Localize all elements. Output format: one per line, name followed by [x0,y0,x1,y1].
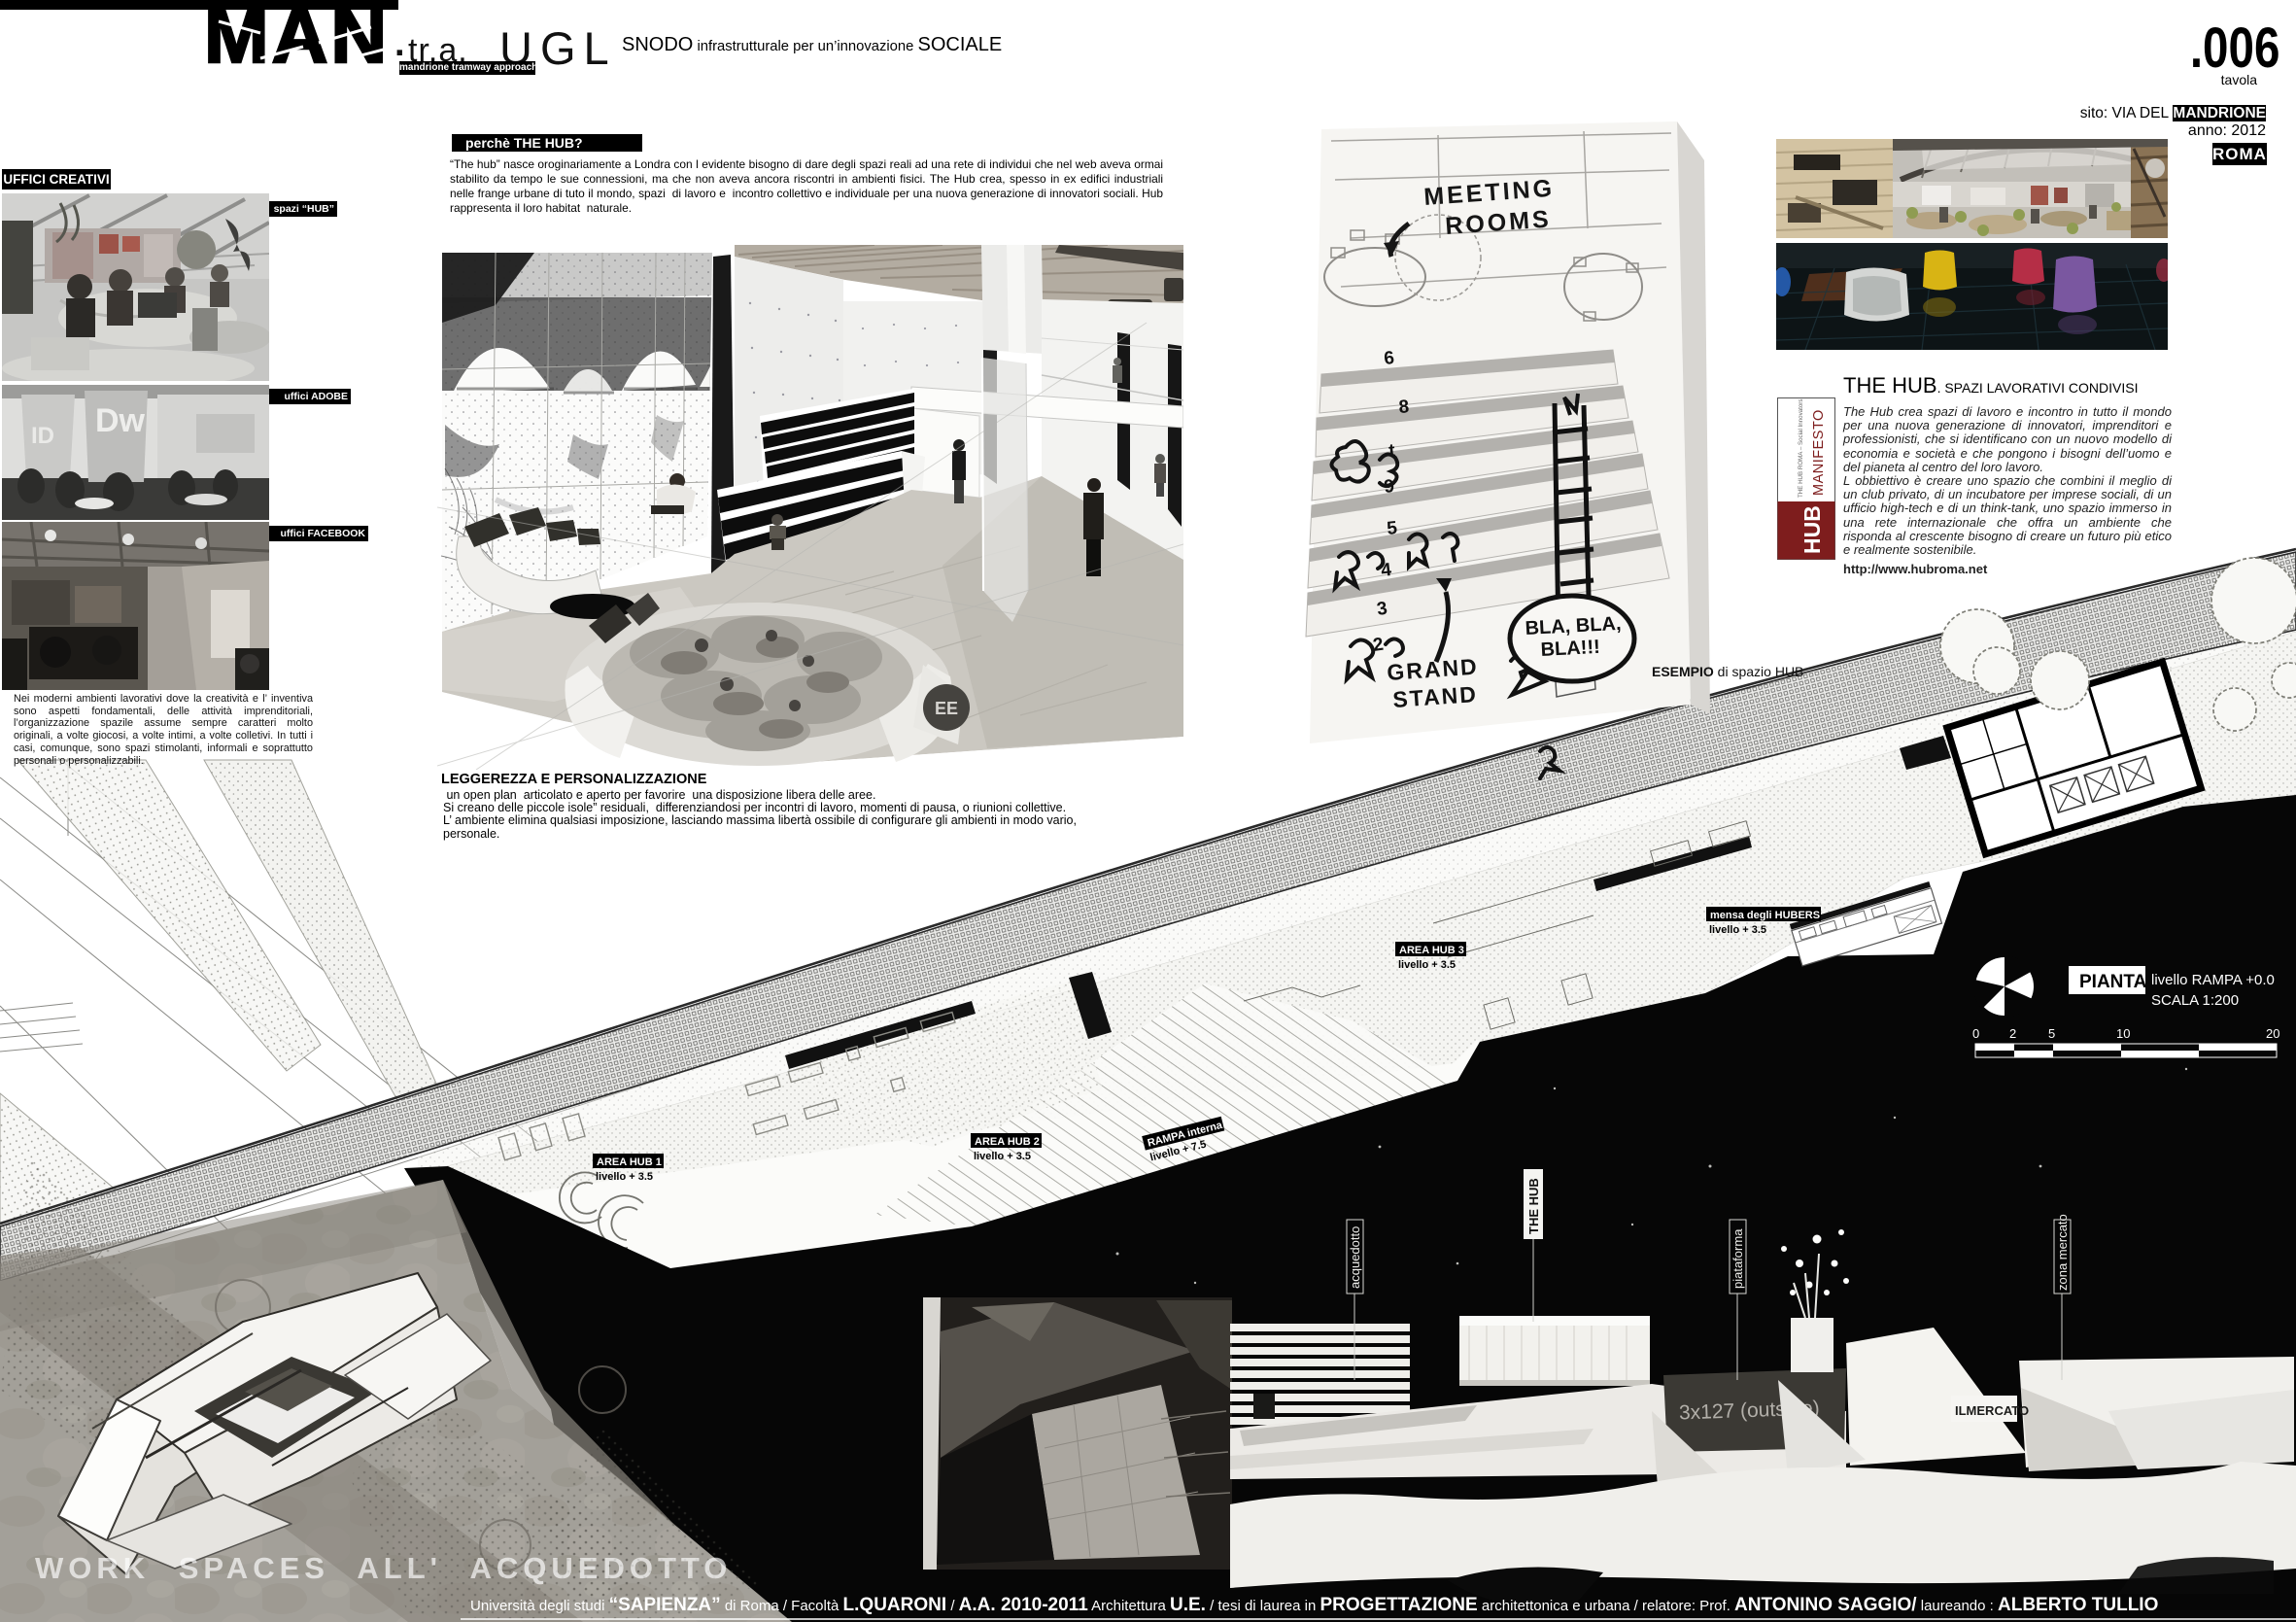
svg-text:acquedotto: acquedotto [1348,1226,1362,1289]
svg-text:10: 10 [2116,1026,2130,1041]
svg-text:HUB: HUB [1799,505,1825,554]
svg-text:EE: EE [935,699,958,718]
svg-text:Dw: Dw [95,402,146,439]
svg-text:piataforma: piataforma [1731,1228,1745,1289]
svg-text:zona mercato: zona mercato [2055,1214,2070,1291]
svg-text:livello RAMPA +0.0: livello RAMPA +0.0 [2151,972,2275,988]
svg-text:mensa degli HUBERS: mensa degli HUBERS [1710,910,1820,921]
svg-text:AREA HUB 2: AREA HUB 2 [975,1136,1040,1148]
svg-text:THE HUB ROMA – Social Innovato: THE HUB ROMA – Social Innovators Lab [1798,397,1804,498]
svg-text:8: 8 [1398,397,1410,418]
svg-text:5: 5 [2048,1026,2055,1041]
svg-text:livello + 3.5: livello + 3.5 [1398,959,1456,971]
svg-text:PIANTA: PIANTA [2079,972,2147,992]
svg-text:6: 6 [1383,348,1395,369]
svg-text:ID: ID [31,423,54,449]
svg-text:MANIFESTO: MANIFESTO [1811,409,1827,496]
svg-text:AREA HUB 3: AREA HUB 3 [1399,945,1464,956]
svg-text:Università degli studi “SAPIEN: Università degli studi “SAPIENZA” di Rom… [470,1595,2158,1615]
svg-text:2: 2 [2009,1026,2016,1041]
svg-text:BLA!!!: BLA!!! [1540,637,1600,661]
svg-text:AREA HUB 1: AREA HUB 1 [597,1156,662,1168]
svg-text:ILMERCATO: ILMERCATO [1955,1403,2029,1418]
svg-text:THE HUB: THE HUB [1526,1178,1541,1234]
svg-text:MAN: MAN [204,0,390,72]
svg-text:0: 0 [1972,1026,1979,1041]
svg-text:WORK SPACES ALL' ACQUEDOTTO: WORK SPACES ALL' ACQUEDOTTO [35,1551,732,1585]
svg-text:livello + 3.5: livello + 3.5 [596,1171,653,1183]
svg-text:SCALA 1:200: SCALA 1:200 [2151,992,2239,1009]
svg-text:20: 20 [2266,1026,2279,1041]
svg-text:livello + 3.5: livello + 3.5 [1709,924,1766,936]
svg-text:livello + 3.5: livello + 3.5 [974,1151,1031,1162]
